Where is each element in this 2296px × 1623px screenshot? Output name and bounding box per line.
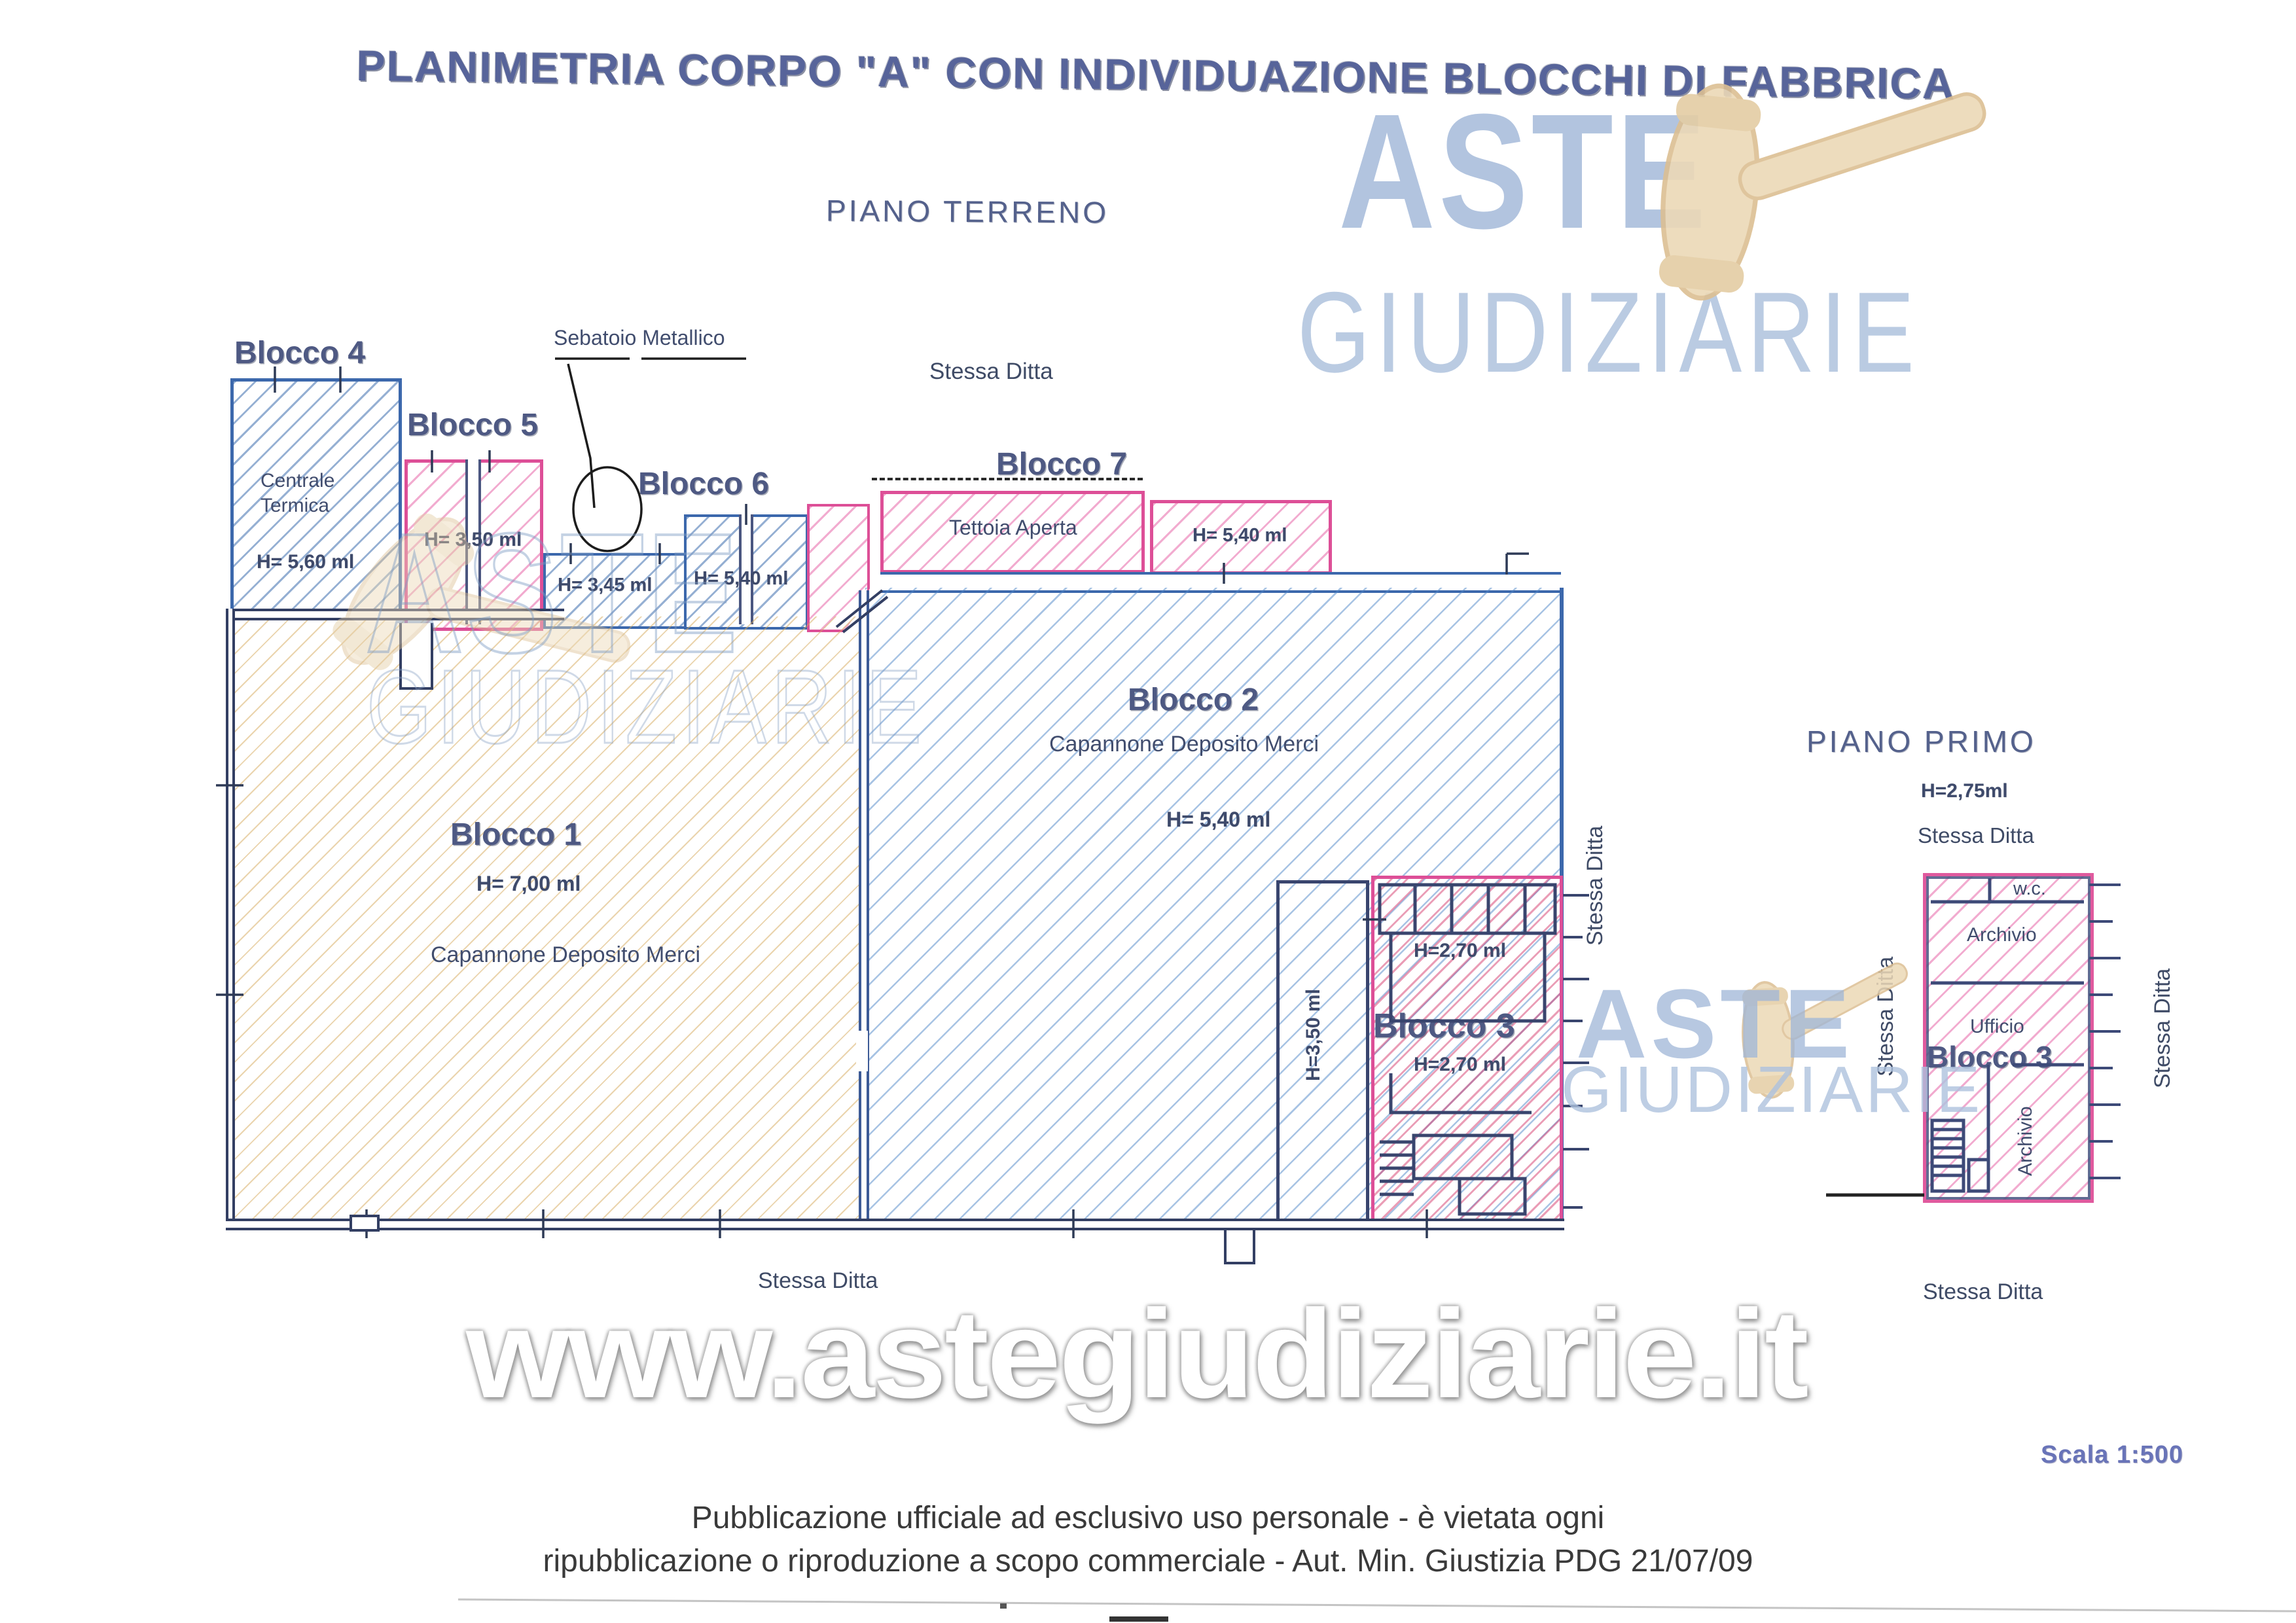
scale-label: Scala 1:500 — [2041, 1441, 2183, 1469]
first-floor-ticks — [1826, 885, 2121, 1195]
first-floor-interior — [1931, 878, 2084, 1191]
watermark-giudiziarie-center: GIUDIZIARIE — [1561, 1052, 1982, 1128]
blocco3-ground-interior — [1380, 885, 1555, 1214]
scanned-floorplan-page: PLANIMETRIA CORPO "A" CON INDIVIDUAZIONE… — [0, 0, 2296, 1623]
watermark-url: www.astegiudiziarie.it — [466, 1281, 1807, 1426]
blocco2-slant-wall — [836, 590, 888, 632]
footer-line-1: Pubblicazione ufficiale ad esclusivo uso… — [0, 1500, 2296, 1536]
watermark-giudiziarie-left: GIUDIZIARIE — [367, 647, 927, 767]
scan-artifact-lines — [458, 1599, 2296, 1622]
footer-line-2: ripubblicazione o riproduzione a scopo c… — [0, 1543, 2296, 1579]
gavel-icon-top-right — [1653, 58, 1992, 326]
